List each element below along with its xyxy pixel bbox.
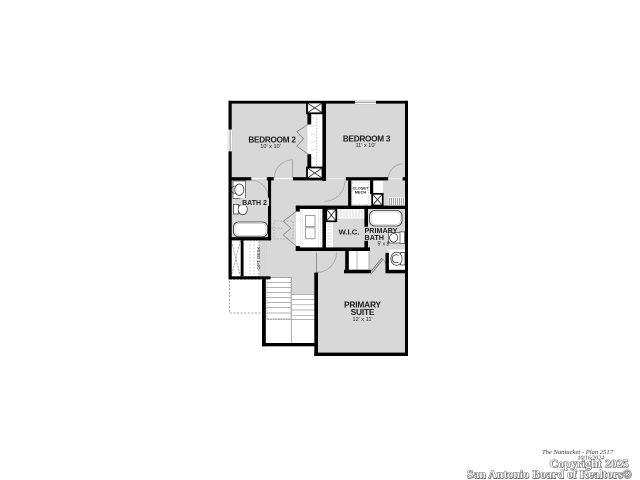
svg-text:SUITE: SUITE bbox=[351, 307, 375, 317]
svg-text:12' x 11': 12' x 11' bbox=[352, 317, 372, 323]
svg-text:BATH 2: BATH 2 bbox=[242, 200, 267, 207]
svg-text:San Antonio Board of Realtors®: San Antonio Board of Realtors® bbox=[467, 467, 632, 480]
svg-text:11' x 10': 11' x 10' bbox=[355, 143, 375, 149]
svg-text:MECH: MECH bbox=[355, 190, 367, 195]
svg-text:OPT DESK: OPT DESK bbox=[256, 245, 261, 269]
svg-text:5' x 8': 5' x 8' bbox=[378, 241, 391, 247]
svg-text:W.I.C.: W.I.C. bbox=[339, 228, 360, 237]
svg-text:10' x 10': 10' x 10' bbox=[260, 144, 281, 150]
